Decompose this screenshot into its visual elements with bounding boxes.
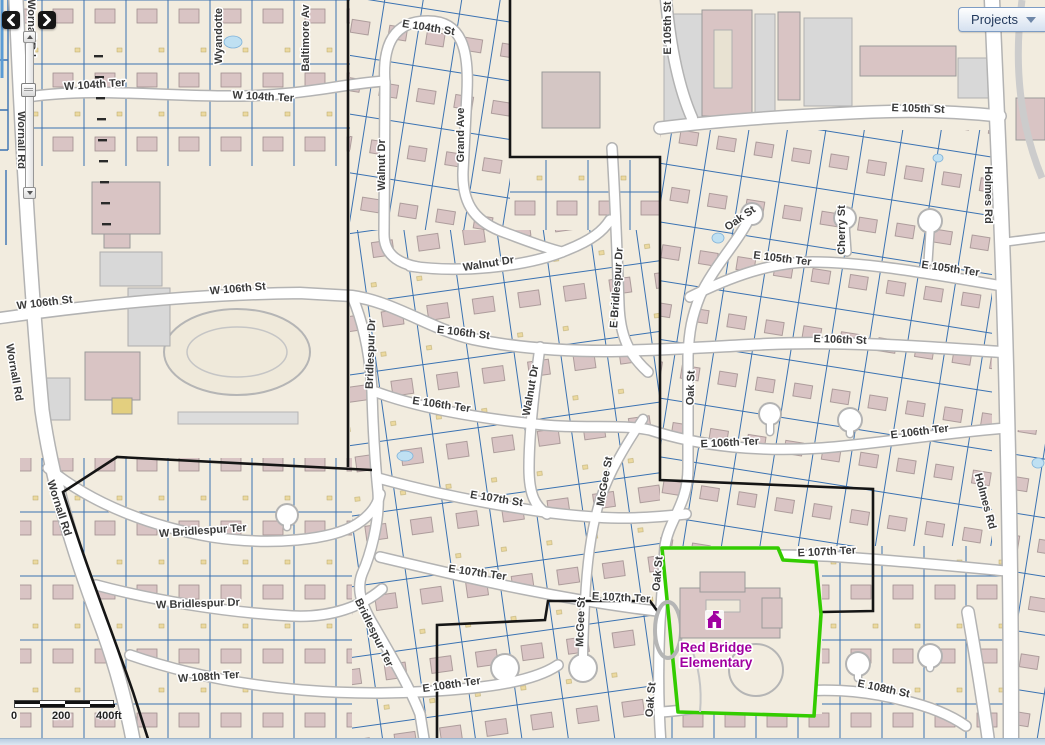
street-label: Oak St [684, 370, 697, 406]
street-label: Wyandotte [213, 8, 225, 64]
chevron-left-icon [6, 14, 16, 26]
street-label: Cherry St [836, 205, 848, 255]
triangle-up-icon [27, 35, 33, 39]
nav-back-button[interactable] [2, 11, 20, 29]
scale-bar: 0 200 400ft [14, 700, 114, 726]
chevron-right-icon [42, 14, 52, 26]
open-field-block [512, 0, 660, 158]
street-label: E 106th St [813, 333, 867, 347]
zoom-slider-track[interactable] [25, 42, 34, 190]
triangle-down-icon [27, 191, 33, 195]
map-canvas[interactable]: W 104th TerW 104th TerE 104th StWyandott… [0, 0, 1045, 745]
street-label: E 105th St [662, 1, 674, 55]
nav-forward-button[interactable] [38, 11, 56, 29]
projects-dropdown-button[interactable]: Projects [958, 7, 1045, 32]
street-label: Holmes Rd [982, 166, 994, 223]
school-label-line2: Elementary [680, 655, 753, 670]
school-label-line1: Red Bridge [680, 640, 753, 655]
street-label: Baltimore Av [300, 4, 312, 72]
scale-tick-200: 200 [52, 710, 70, 722]
caret-down-icon [1026, 17, 1036, 23]
school-icon [705, 610, 724, 630]
school-selection-outline [655, 548, 821, 716]
street-label: McGee St [574, 596, 588, 647]
map-edge-strip [0, 738, 1045, 745]
map-viewport: W 104th TerW 104th TerE 104th StWyandott… [0, 0, 1045, 745]
zoom-out-button[interactable] [23, 187, 36, 199]
scale-bar-segments [14, 700, 114, 708]
scale-tick-0: 0 [11, 710, 17, 722]
zoom-slider [21, 31, 35, 199]
street-label: E 105th St [891, 102, 945, 116]
projects-button-label: Projects [971, 12, 1018, 27]
scale-tick-400: 400ft [96, 710, 122, 722]
street-label: Grand Ave [455, 108, 467, 163]
street-label: Walnut Dr [376, 139, 388, 191]
zoom-slider-thumb[interactable] [21, 83, 36, 97]
street-label: Bridlespur Dr [364, 318, 378, 389]
